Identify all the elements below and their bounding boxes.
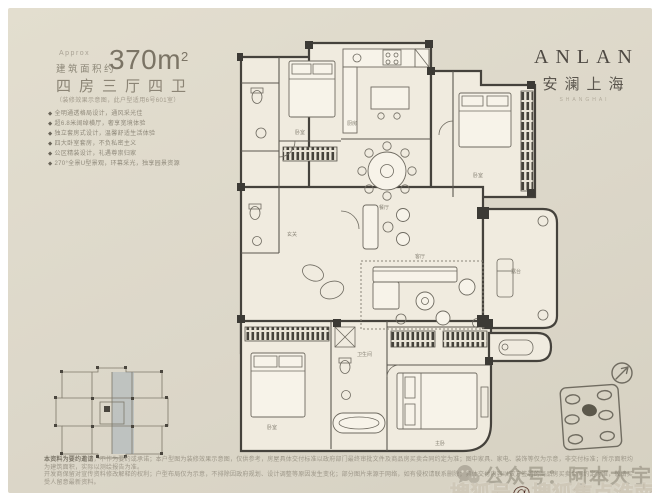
feature-text: 公区精装设计，礼遇尊崇归家 [55,151,137,157]
diamond-bullet-icon: ◆ [48,111,53,117]
feature-item: ◆公区精装设计，礼遇尊崇归家 [48,149,180,159]
plan-note: （装修效果示意图，此户型适用6号601室） [56,95,180,104]
area-number: 370m [109,44,181,75]
master-bed [397,373,488,429]
poster-stage: Approx 建筑面积约 370m2 四房三厅四卫 （装修效果示意图，此户型适用… [0,0,660,498]
label-bedroom2: 卧室 [295,129,305,136]
label-living: 客厅 [415,253,425,260]
feature-item: ◆四大卧室套房，不负私密主义 [48,139,180,149]
area-label: 建筑面积约 [56,61,116,75]
floorplan-drawing: 厨房 餐厅 客厅 露台 主卧 卧室 卧室 卧室 玄关 卫生间 [191,21,571,456]
diamond-bullet-icon: ◆ [48,141,53,147]
feature-text: 独立套房式设计，温馨舒适生活体验 [55,131,156,137]
feature-list: ◆全明通透格局设计，通风采光佳 ◆超6.8米阔绰横厅，奢享宽境体验 ◆独立套房式… [48,109,180,169]
keyplan-drawing [48,364,176,462]
feature-text: 270°全景U型景观，环幕采光，独享园景资源 [55,161,180,167]
feature-item: ◆独立套房式设计，温馨舒适生活体验 [48,129,180,139]
sketch-room [560,384,622,450]
bedroom3-furniture [459,93,511,147]
diamond-bullet-icon: ◆ [48,121,53,127]
label-bedroom4: 卧室 [267,424,277,431]
label-bedroom3: 卧室 [473,172,483,179]
sketch-table [548,358,652,458]
feature-item: ◆全明通透格局设计，通风采光佳 [48,109,180,119]
diamond-bullet-icon: ◆ [48,151,53,157]
label-dining: 餐厅 [379,204,389,211]
label-kitchen: 厨房 [347,120,357,127]
layout-type: 四房三厅四卫 [56,75,194,96]
feature-text: 全明通透格局设计，通风采光佳 [55,111,143,117]
unit-highlight [112,372,134,454]
feature-item: ◆270°全景U型景观，环幕采光，独享园景资源 [48,159,180,169]
watermark-sohu: 搜狐号@搜狐焦点淮南站 [450,477,652,493]
feature-text: 四大卧室套房，不负私密主义 [55,141,137,147]
label-master: 主卧 [435,440,445,447]
north-arrow-icon [612,363,632,383]
area-value: 370m2 [109,44,189,76]
diamond-bullet-icon: ◆ [48,131,53,137]
label-bath: 卫生间 [357,351,372,358]
approx-label: Approx [59,50,90,57]
keyplan-columns [54,366,168,458]
disclaimer-lead: 本资料为要约邀请 [44,457,94,463]
feature-text: 超6.8米阔绰横厅，奢享宽境体验 [55,121,146,127]
bedroom4-furniture [251,353,305,417]
floorplan-card: Approx 建筑面积约 370m2 四房三厅四卫 （装修效果示意图，此户型适用… [8,8,652,493]
diamond-bullet-icon: ◆ [48,161,53,167]
feature-item: ◆超6.8米阔绰横厅，奢享宽境体验 [48,119,180,129]
area-superscript: 2 [181,49,189,64]
label-terrace: 露台 [511,268,521,275]
label-foyer: 玄关 [287,231,297,238]
